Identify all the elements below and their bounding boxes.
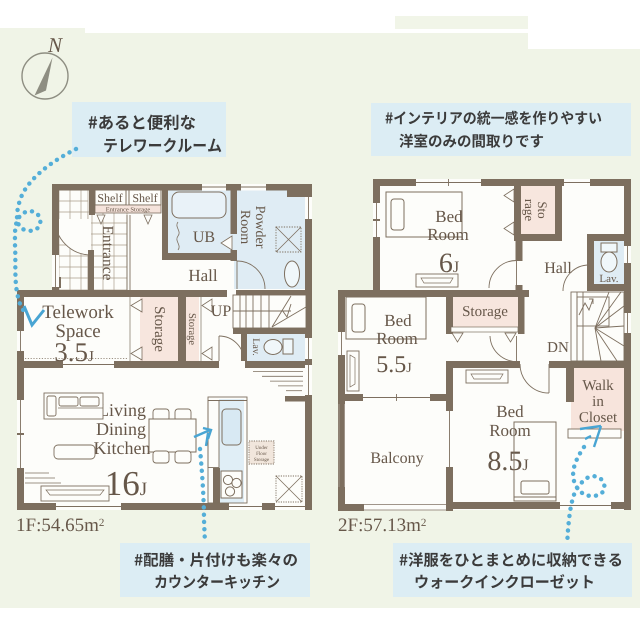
svg-text:Living: Living <box>98 400 146 420</box>
svg-text:Entrance: Entrance <box>99 225 116 280</box>
svg-text:rage: rage <box>522 199 537 222</box>
svg-text:Floor: Floor <box>256 451 267 457</box>
svg-text:Bed: Bed <box>435 207 463 226</box>
svg-text:Shelf: Shelf <box>97 191 122 205</box>
svg-text:Hall: Hall <box>544 260 572 277</box>
svg-text:Storage: Storage <box>254 457 270 463</box>
svg-text:Room: Room <box>427 225 469 244</box>
svg-text:Bed: Bed <box>496 402 524 421</box>
svg-text:Telework: Telework <box>42 302 114 323</box>
svg-text:Powder: Powder <box>252 206 267 249</box>
svg-text:N: N <box>47 33 63 57</box>
svg-text:1F:54.65m2: 1F:54.65m2 <box>16 515 104 536</box>
svg-text:DN: DN <box>547 340 569 356</box>
svg-text:Room: Room <box>376 329 418 348</box>
svg-text:Dining: Dining <box>96 419 146 439</box>
svg-text:Walk: Walk <box>582 378 614 394</box>
svg-text:UB: UB <box>193 229 215 246</box>
svg-text:UP: UP <box>211 303 232 320</box>
svg-text:2F:57.13m2: 2F:57.13m2 <box>338 515 426 536</box>
svg-text:Under: Under <box>255 445 268 451</box>
svg-text:Closet: Closet <box>579 410 618 426</box>
svg-text:Lav.: Lav. <box>599 273 618 285</box>
svg-text:Storage: Storage <box>186 313 197 345</box>
svg-text:Entrance Storage: Entrance Storage <box>106 207 151 214</box>
svg-text:Storage: Storage <box>151 306 167 352</box>
svg-text:Storage: Storage <box>462 304 508 320</box>
svg-text:Shelf: Shelf <box>132 191 157 205</box>
svg-text:Bed: Bed <box>384 311 412 330</box>
svg-text:in: in <box>592 394 604 410</box>
svg-text:Balcony: Balcony <box>370 450 423 467</box>
svg-text:Hall: Hall <box>188 266 218 285</box>
svg-text:Room: Room <box>237 210 252 244</box>
svg-text:Lav.: Lav. <box>250 338 261 355</box>
svg-text:Kitchen: Kitchen <box>94 438 151 458</box>
